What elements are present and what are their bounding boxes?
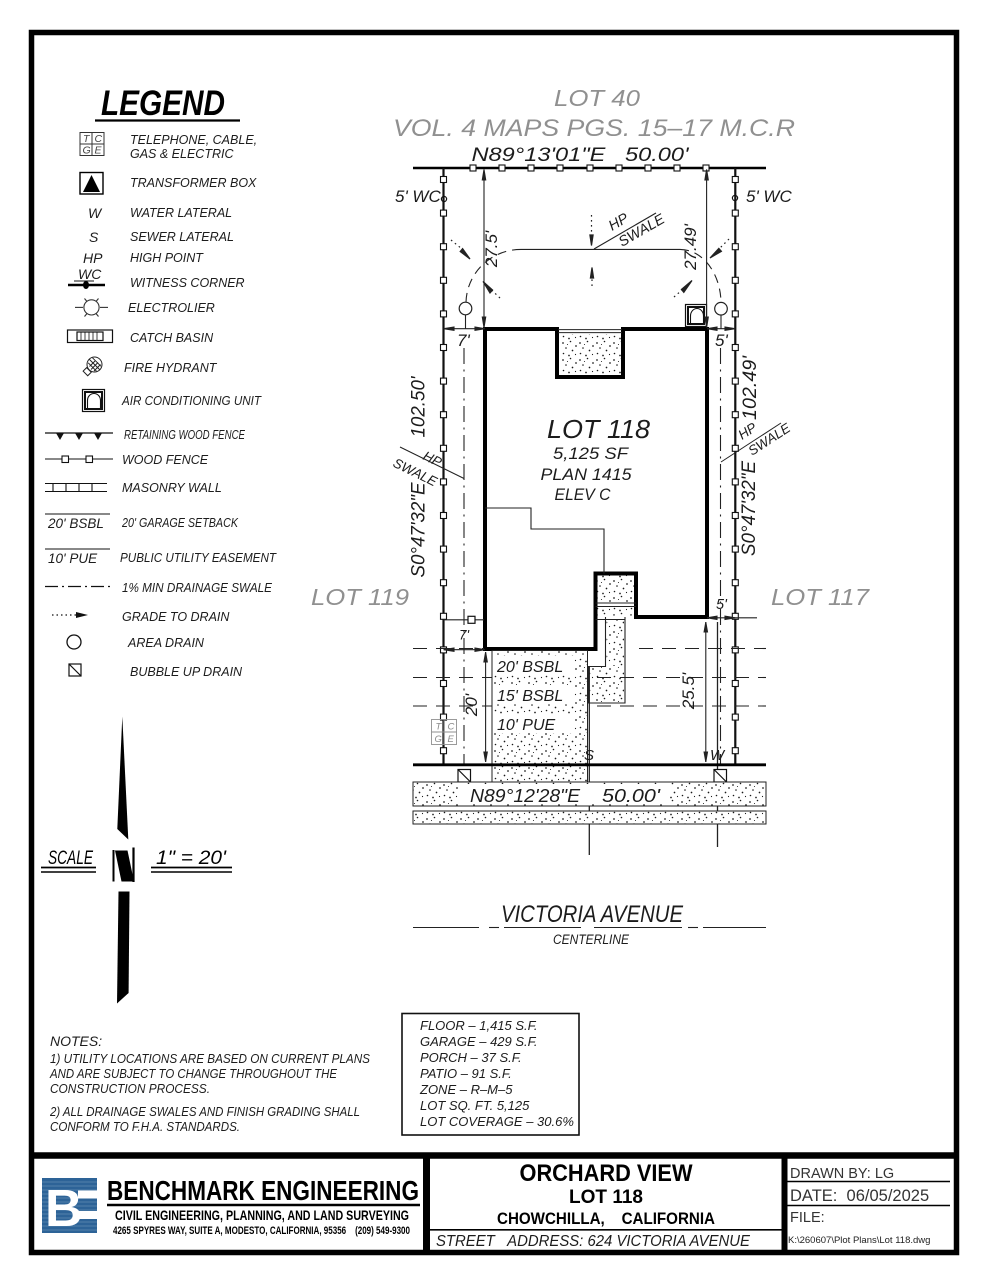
svg-text:20' BSBL: 20' BSBL — [47, 516, 104, 531]
svg-text:SEWER LATERAL: SEWER LATERAL — [130, 230, 234, 244]
svg-text:S: S — [89, 229, 99, 245]
svg-text:5': 5' — [716, 597, 728, 613]
svg-text:LOT SQ. FT. 5,125: LOT SQ. FT. 5,125 — [420, 1098, 530, 1113]
svg-text:4265 SPYRES WAY, SUITE A, MODE: 4265 SPYRES WAY, SUITE A, MODESTO, CALIF… — [113, 1225, 410, 1237]
svg-text:HP: HP — [83, 250, 103, 266]
svg-text:CATCH BASIN: CATCH BASIN — [130, 331, 214, 345]
svg-text:LOT 117: LOT 117 — [771, 584, 870, 610]
svg-text:LEGEND: LEGEND — [101, 84, 225, 123]
svg-text:BUBBLE UP DRAIN: BUBBLE UP DRAIN — [130, 665, 243, 679]
svg-text:SCALE: SCALE — [48, 848, 93, 869]
svg-text:FILE:: FILE: — [790, 1210, 825, 1226]
svg-text:C: C — [448, 722, 455, 733]
svg-text:PUBLIC UTILITY EASEMENT: PUBLIC UTILITY EASEMENT — [120, 551, 277, 565]
svg-text:PORCH – 37 S.F.: PORCH – 37 S.F. — [420, 1050, 522, 1065]
svg-text:20' BSBL: 20' BSBL — [496, 659, 563, 676]
svg-text:HIGH POINT: HIGH POINT — [130, 251, 204, 265]
svg-text:102.50': 102.50' — [409, 375, 430, 437]
svg-text:LOT 118: LOT 118 — [547, 414, 651, 444]
svg-text:E: E — [95, 145, 103, 157]
svg-text:WOOD FENCE: WOOD FENCE — [122, 453, 209, 467]
svg-text:STREET ADDRESS: 624 VICTOR: STREET ADDRESS: 624 VICTORIA AVENUE — [436, 1233, 751, 1250]
svg-text:ELEV C: ELEV C — [555, 485, 612, 504]
svg-text:AIR CONDITIONING UNIT: AIR CONDITIONING UNIT — [121, 394, 262, 408]
svg-text:AND ARE SUBJECT TO CHANGE: AND ARE SUBJECT TO CHANGE THROUGHOUT THE — [49, 1066, 337, 1081]
svg-text:PATIO – 91 S.F.: PATIO – 91 S.F. — [420, 1066, 512, 1081]
svg-text:VICTORIA AVENUE: VICTORIA AVENUE — [501, 901, 684, 928]
svg-text:WC: WC — [78, 266, 102, 282]
svg-text:5' WC: 5' WC — [395, 187, 441, 206]
svg-text:W: W — [710, 747, 726, 764]
svg-text:7': 7' — [459, 628, 470, 643]
svg-text:7': 7' — [457, 331, 470, 350]
svg-text:ZONE – R–M–5: ZONE – R–M–5 — [419, 1082, 513, 1097]
svg-text:CHOWCHILLA, CALIFORNIA: CHOWCHILLA, CALIFORNIA — [497, 1210, 715, 1228]
svg-text:TELEPHONE, CABLE,: TELEPHONE, CABLE, — [130, 133, 257, 147]
svg-text:LOT COVERAGE – 30.6%: LOT COVERAGE – 30.6% — [420, 1114, 574, 1129]
svg-text:GARAGE – 429 S.F.: GARAGE – 429 S.F. — [420, 1034, 538, 1049]
svg-text:DRAWN BY: LG: DRAWN BY: LG — [790, 1166, 894, 1182]
svg-text:LOT 118: LOT 118 — [569, 1187, 643, 1208]
svg-text:10' PUE: 10' PUE — [497, 717, 556, 734]
svg-text:CIVIL ENGINEERING, PLANNING, A: CIVIL ENGINEERING, PLANNING, AND LAND SU… — [115, 1208, 409, 1223]
svg-text:G: G — [83, 145, 91, 157]
svg-text:W: W — [88, 205, 103, 221]
svg-text:CENTERLINE: CENTERLINE — [553, 932, 630, 947]
svg-text:WITNESS CORNER: WITNESS CORNER — [130, 276, 245, 290]
svg-text:N89°12'28"E: N89°12'28"E — [470, 786, 581, 806]
svg-text:E: E — [448, 734, 455, 745]
svg-text:GAS & ELECTRIC: GAS & ELECTRIC — [130, 147, 234, 161]
svg-text:MASONRY WALL: MASONRY WALL — [122, 481, 222, 495]
svg-text:BENCHMARK ENGINEERING: BENCHMARK ENGINEERING — [107, 1175, 419, 1206]
svg-text:NOTES:: NOTES: — [50, 1033, 102, 1049]
svg-text:G: G — [435, 734, 442, 745]
svg-text:S0°47'32"E: S0°47'32"E — [409, 482, 430, 577]
svg-text:S0°47'32"E: S0°47'32"E — [739, 461, 760, 556]
svg-text:VOL. 4 MAPS PGS. 15–17 M.: VOL. 4 MAPS PGS. 15–17 M.C.R — [393, 115, 795, 142]
svg-text:CONSTRUCTION PROCESS.: CONSTRUCTION PROCESS. — [50, 1081, 210, 1096]
svg-text:DATE: 06/05/2025: DATE: 06/05/2025 — [790, 1187, 929, 1205]
svg-text:10' PUE: 10' PUE — [48, 551, 98, 566]
svg-text:27.5': 27.5' — [482, 230, 501, 268]
svg-text:K:\260607\Plot Plans\Lot 118.d: K:\260607\Plot Plans\Lot 118.dwg — [788, 1235, 930, 1246]
svg-text:TRANSFORMER BOX: TRANSFORMER BOX — [130, 176, 257, 190]
svg-text:C: C — [95, 133, 103, 145]
svg-text:5': 5' — [715, 331, 728, 350]
svg-text:N89°13'01"E 50.00': N89°13'01"E 50.00' — [472, 145, 691, 166]
svg-text:15' BSBL: 15' BSBL — [497, 688, 563, 705]
svg-text:LOT 119: LOT 119 — [311, 584, 409, 610]
svg-text:20': 20' — [462, 693, 481, 717]
svg-text:AREA DRAIN: AREA DRAIN — [127, 636, 205, 650]
svg-text:LOT 40: LOT 40 — [554, 85, 640, 111]
svg-text:CONFORM TO F.H.A. STANDARDS: CONFORM TO F.H.A. STANDARDS. — [50, 1119, 240, 1134]
svg-text:50.00': 50.00' — [602, 786, 661, 806]
svg-text:ORCHARD VIEW: ORCHARD VIEW — [520, 1160, 693, 1187]
svg-text:ELECTROLIER: ELECTROLIER — [128, 301, 215, 315]
svg-text:27.49': 27.49' — [681, 223, 700, 271]
svg-text:WATER LATERAL: WATER LATERAL — [130, 206, 232, 220]
svg-text:2) ALL DRAINAGE SWALES AND: 2) ALL DRAINAGE SWALES AND FINISH GRADIN… — [49, 1104, 360, 1119]
svg-text:5' WC: 5' WC — [746, 187, 792, 206]
svg-text:1% MIN DRAINAGE SWALE: 1% MIN DRAINAGE SWALE — [122, 581, 273, 595]
svg-text:1) UTILITY LOCATIONS ARE B: 1) UTILITY LOCATIONS ARE BASED ON CURREN… — [50, 1051, 370, 1066]
svg-text:102.49': 102.49' — [740, 355, 761, 420]
svg-text:PLAN 1415: PLAN 1415 — [541, 465, 633, 484]
svg-text:25.5': 25.5' — [679, 672, 698, 710]
svg-text:RETAINING WOOD FENCE: RETAINING WOOD FENCE — [124, 428, 246, 442]
svg-text:FLOOR – 1,415 S.F.: FLOOR – 1,415 S.F. — [420, 1018, 538, 1033]
svg-text:5,125 SF: 5,125 SF — [553, 444, 630, 463]
svg-text:S: S — [584, 747, 594, 764]
svg-text:1" = 20': 1" = 20' — [156, 848, 227, 869]
svg-text:GRADE TO DRAIN: GRADE TO DRAIN — [122, 610, 230, 624]
svg-text:FIRE HYDRANT: FIRE HYDRANT — [124, 361, 218, 375]
svg-text:20' GARAGE SETBACK: 20' GARAGE SETBACK — [121, 516, 238, 530]
svg-text:B: B — [45, 1180, 83, 1238]
